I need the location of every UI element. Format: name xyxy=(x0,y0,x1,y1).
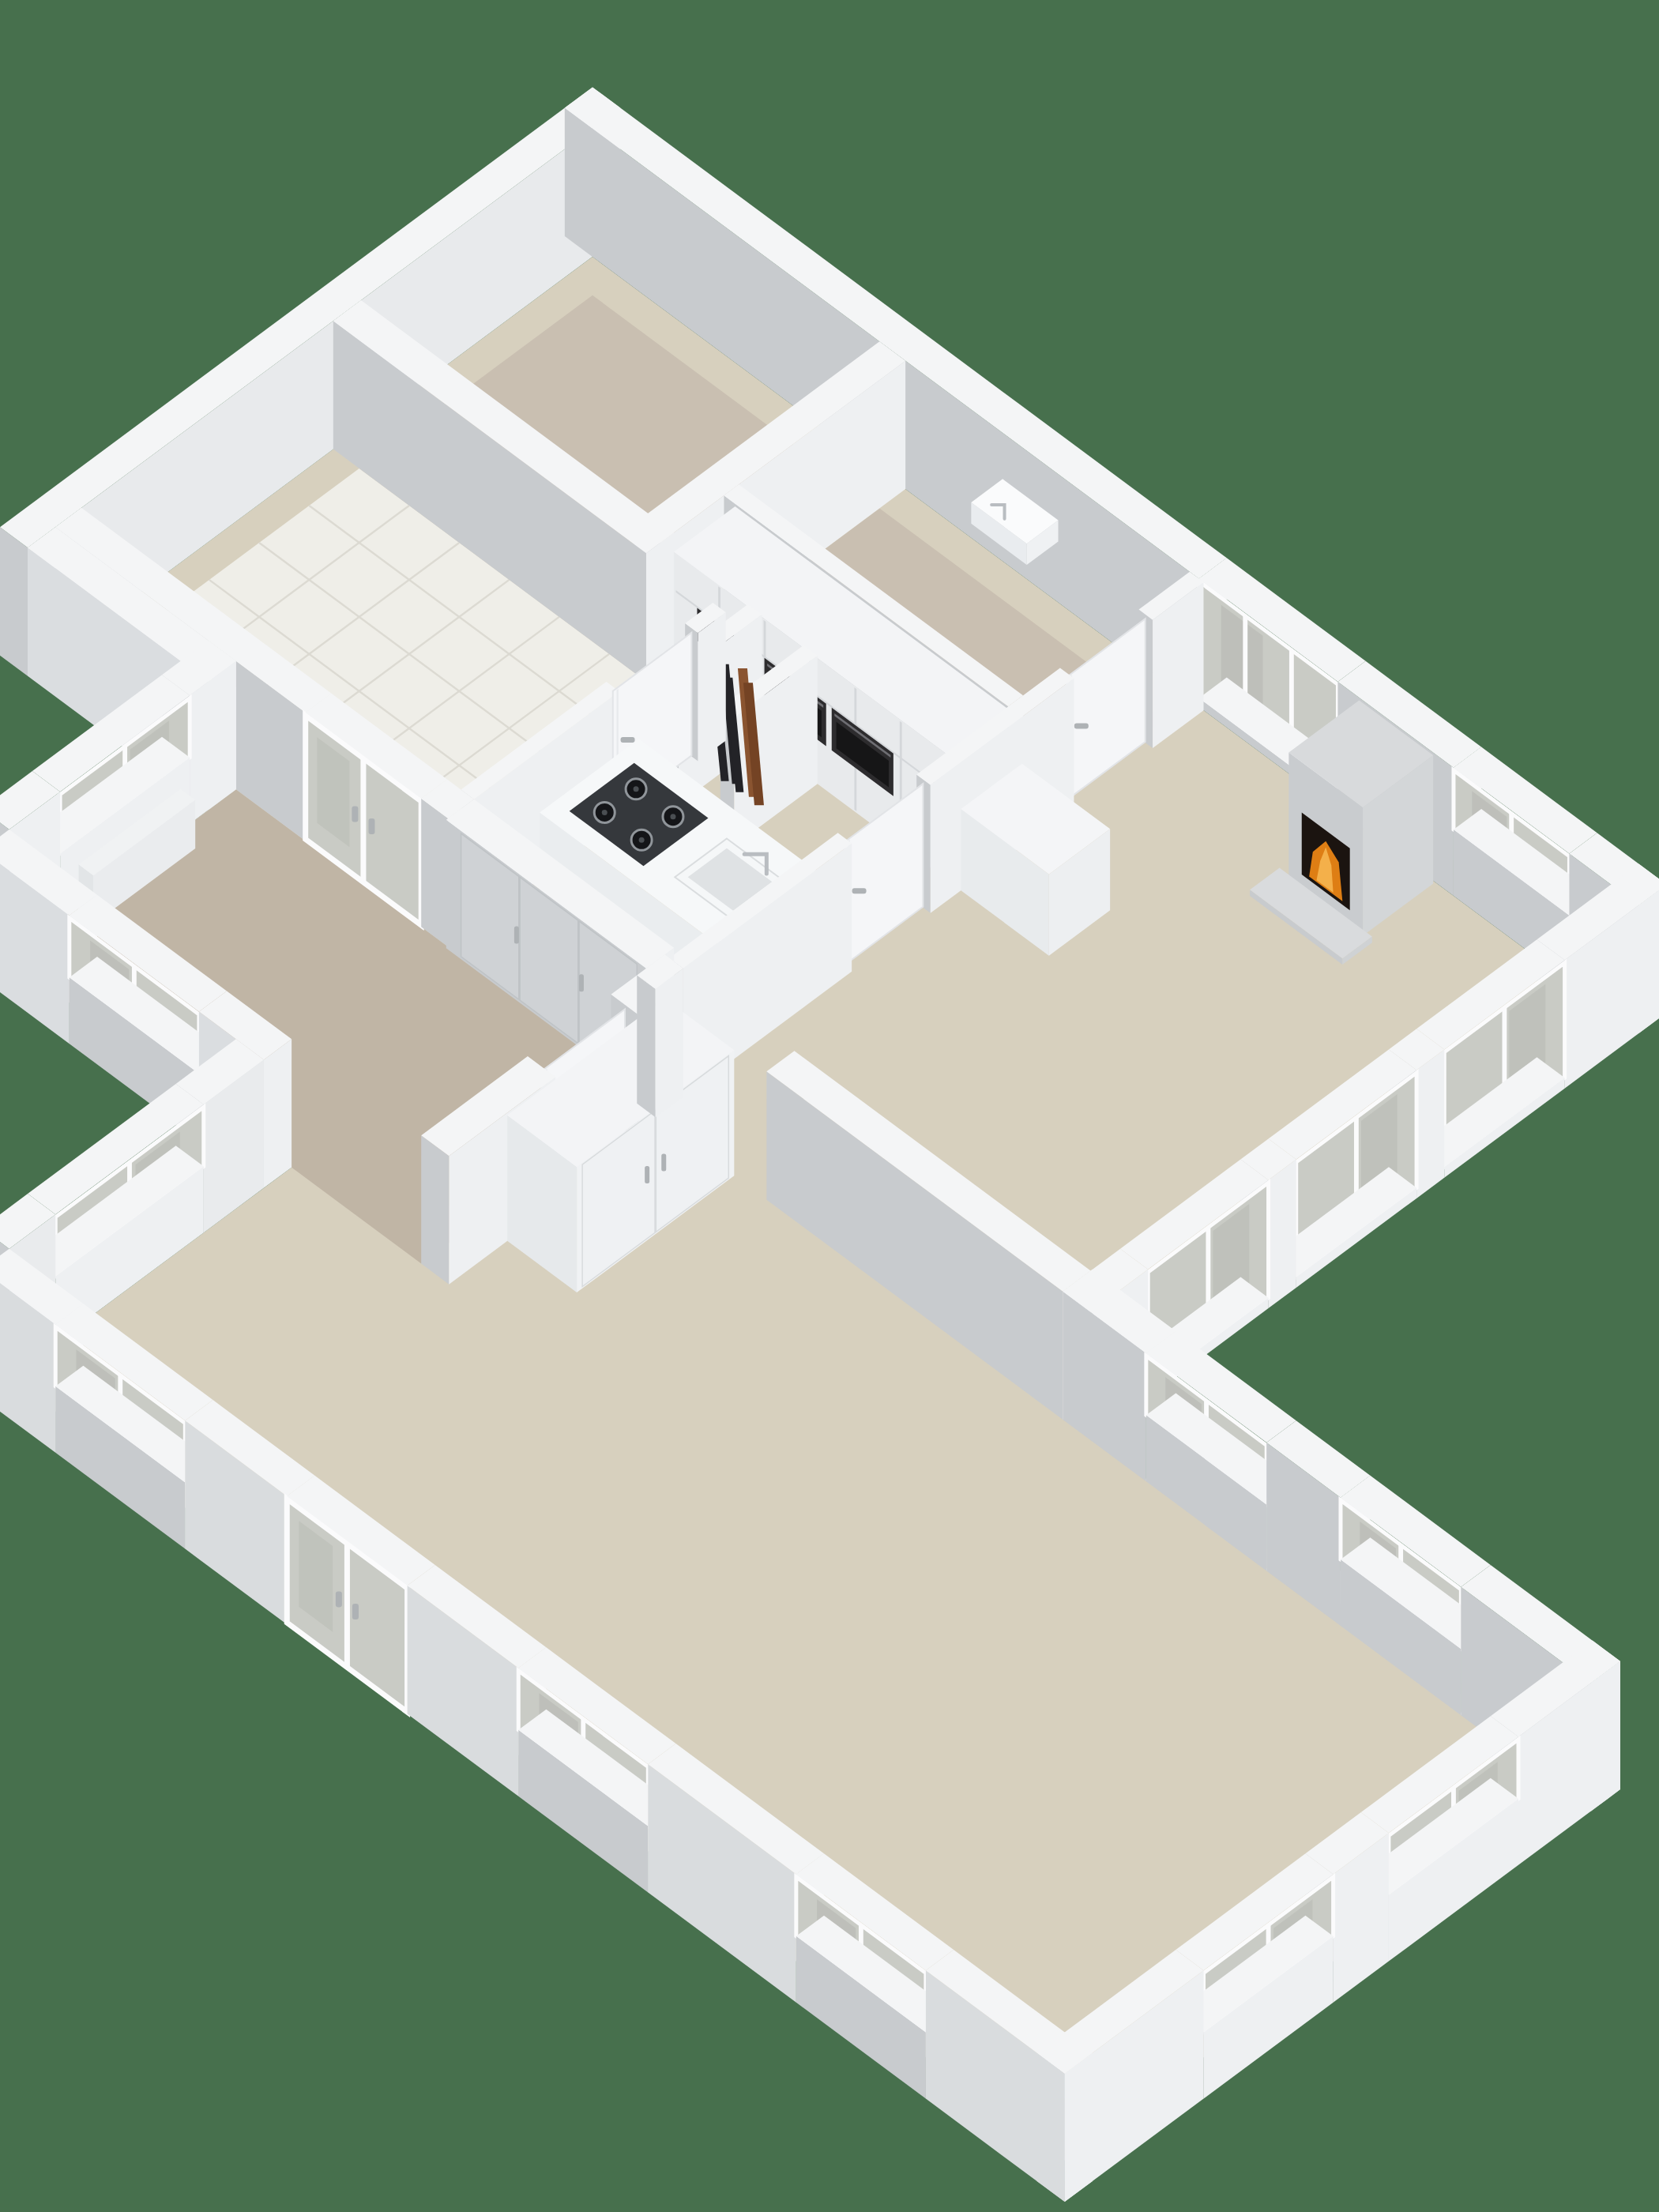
floor-plan-3d-svg xyxy=(0,0,1659,2212)
floor-plan-render xyxy=(0,0,1659,2212)
wall-living-jamb xyxy=(637,954,683,1117)
